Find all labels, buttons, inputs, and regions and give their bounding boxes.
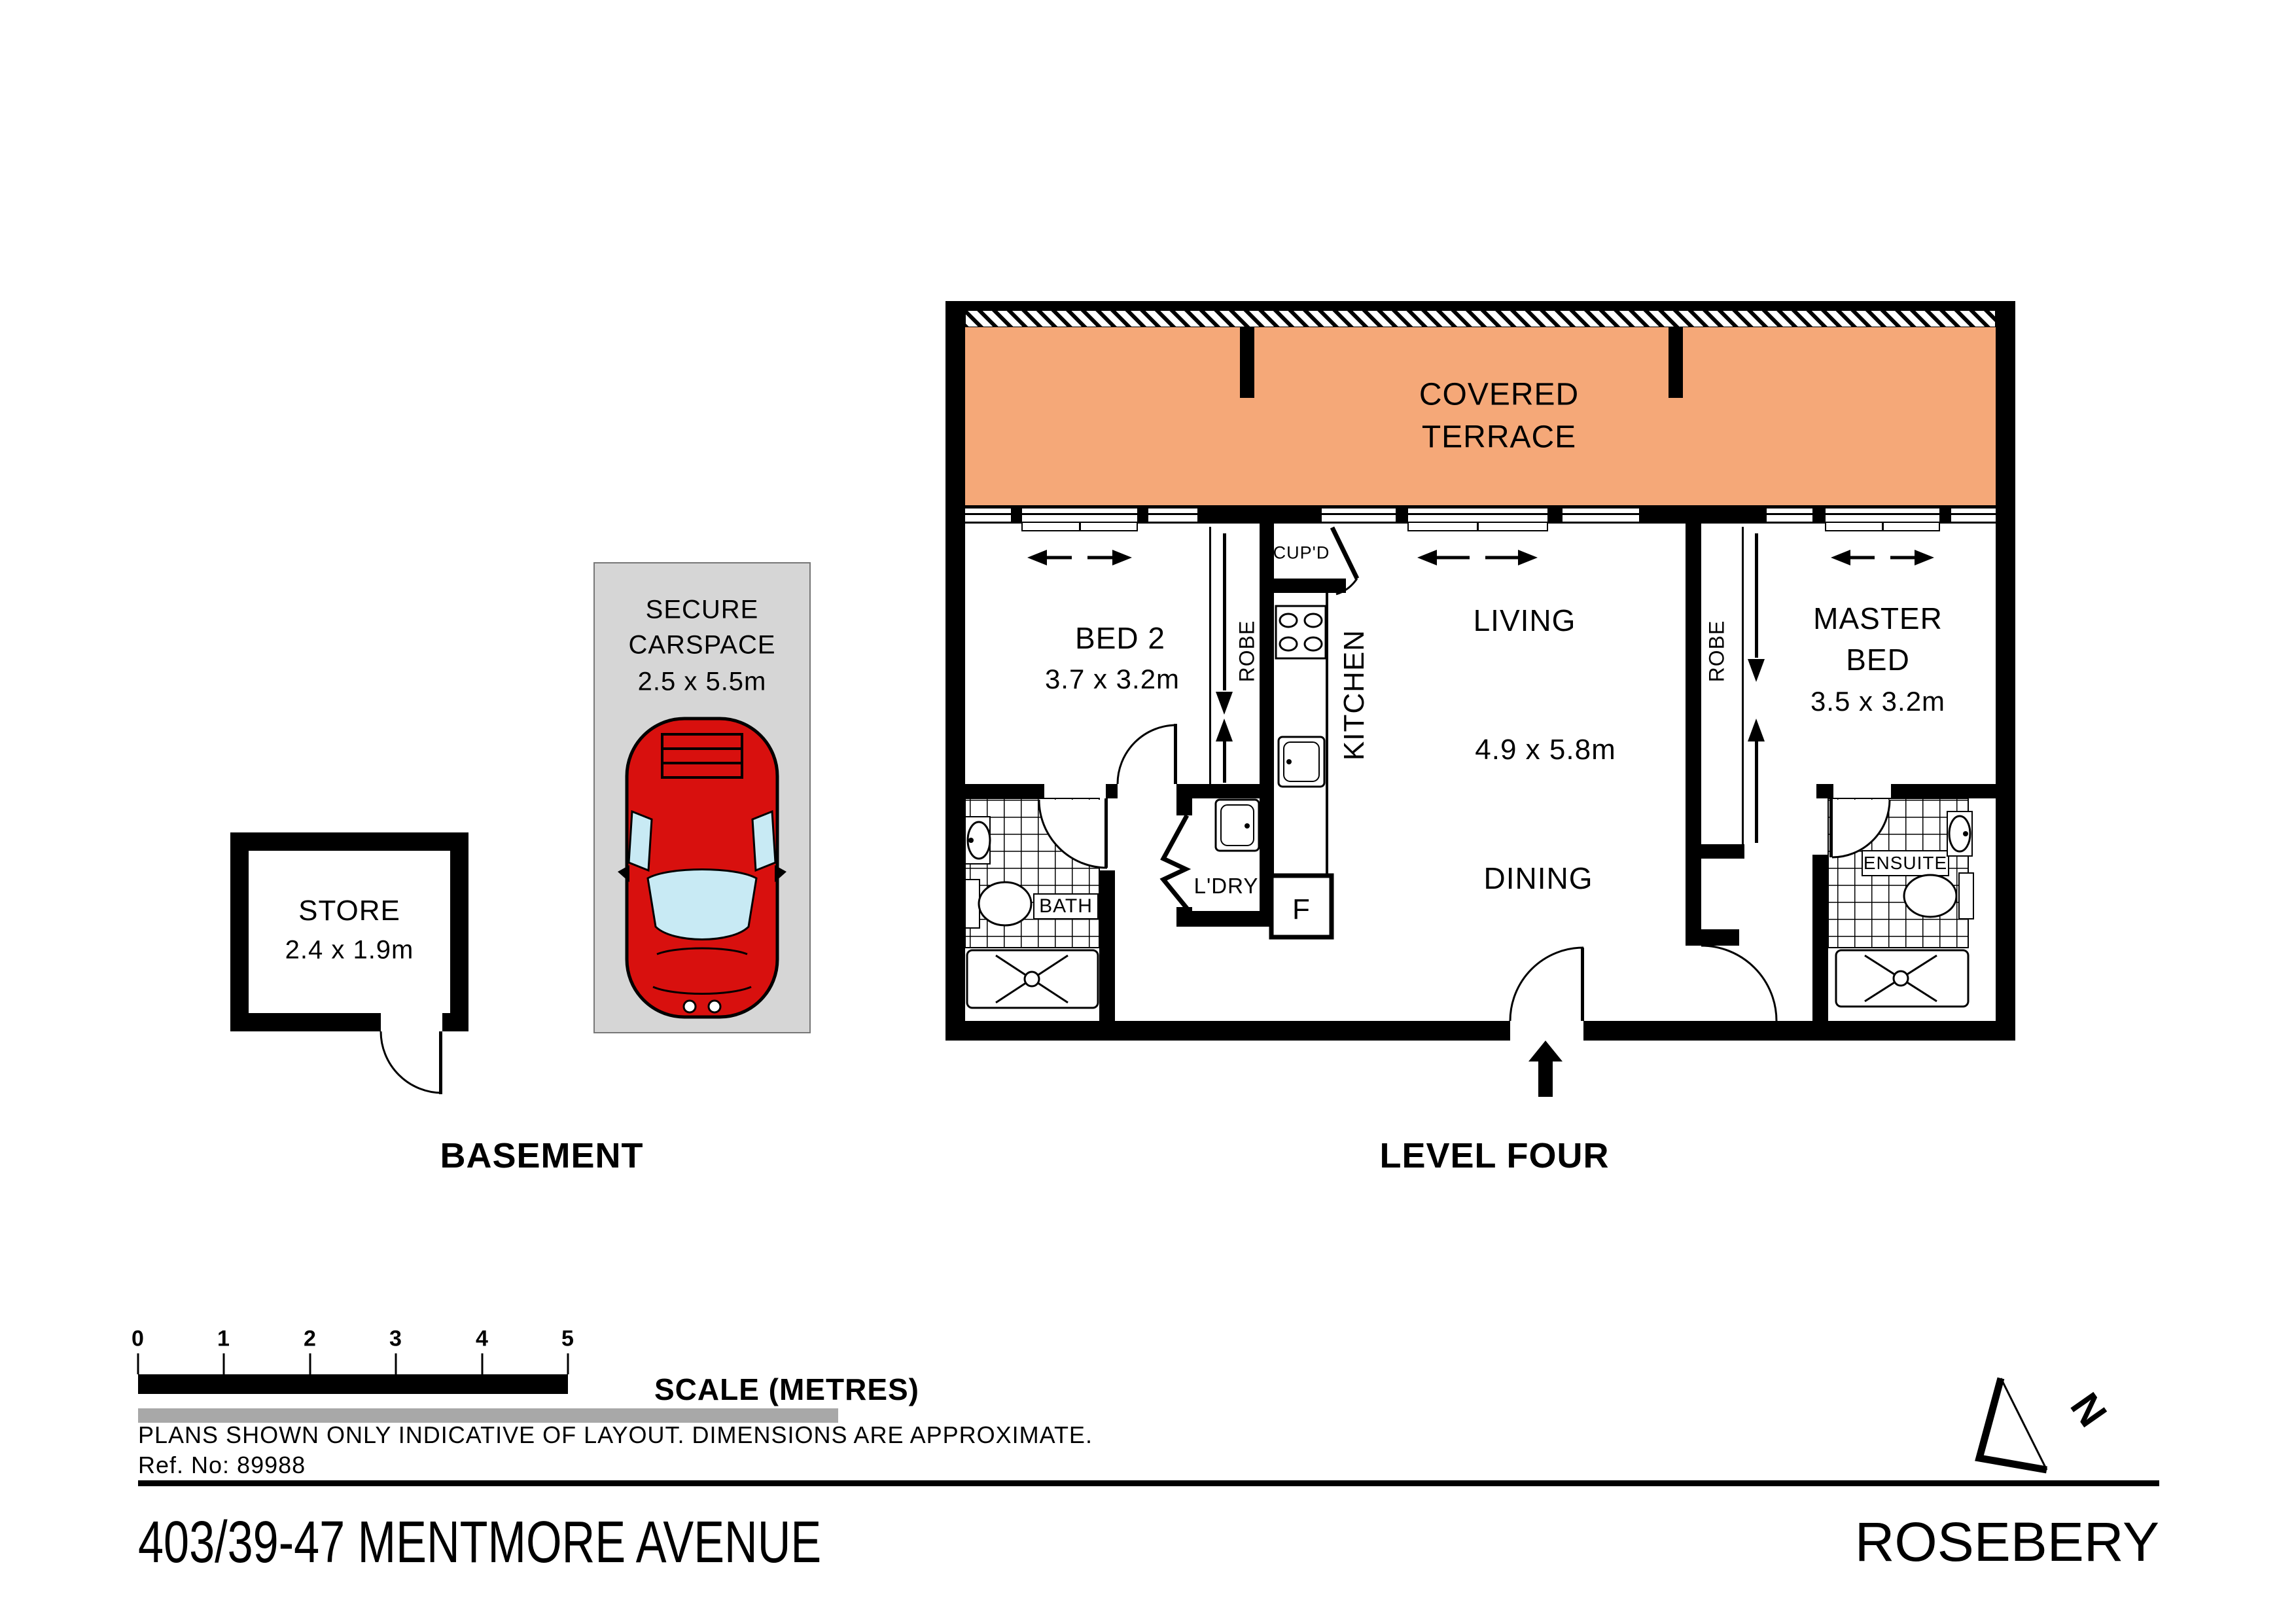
laundry-tub-icon	[1216, 800, 1259, 851]
property-suburb: ROSEBERY	[1855, 1510, 2159, 1574]
terrace-column-left	[1240, 327, 1254, 398]
disclaimer-text: PLANS SHOWN ONLY INDICATIVE OF LAYOUT. D…	[138, 1421, 1093, 1449]
north-letter: N	[2062, 1385, 2115, 1435]
robes	[1209, 527, 1765, 844]
room-label-bath: BATH	[1039, 895, 1093, 918]
terrace-top-wall	[945, 301, 2015, 310]
store-door-leaf	[439, 1031, 442, 1094]
ensuite-toilet-cistern	[1959, 873, 1973, 919]
store-door-swing	[381, 1031, 442, 1093]
cupboard-label: CUP'D	[1273, 543, 1330, 563]
room-dims-living: 4.9 x 5.8m	[1475, 734, 1616, 766]
room-label-master-line2: BED	[1846, 642, 1910, 677]
section-title-level-four: LEVEL FOUR	[1379, 1135, 1609, 1176]
outer-wall-left	[945, 301, 965, 1041]
section-title-basement: BASEMENT	[440, 1135, 643, 1176]
room-dims-master: 3.5 x 3.2m	[1810, 686, 1945, 717]
robe-label-master: ROBE	[1705, 620, 1729, 683]
robe-label-bed2: ROBE	[1235, 620, 1260, 683]
bath-toilet-icon	[979, 882, 1031, 925]
cupboard-door	[1332, 527, 1357, 579]
terrace-hatch-strip	[965, 310, 1996, 327]
scale-number-4: 4	[476, 1327, 489, 1352]
window-slide-arrowheads	[1027, 550, 1934, 565]
terrace-label-line2: TERRACE	[1422, 419, 1576, 455]
ref-number: Ref. No: 89988	[138, 1452, 306, 1479]
room-label-kitchen: KITCHEN	[1338, 630, 1371, 760]
room-label-dining: DINING	[1484, 861, 1593, 896]
outer-wall-bottom-left-seg	[945, 1021, 1510, 1041]
ensuite-toilet-icon	[1904, 875, 1956, 917]
scale-number-2: 2	[304, 1327, 317, 1352]
covered-terrace-area	[965, 327, 1996, 505]
floorplan-page: N COVERED TERRACE BED 2 3.7 x 3.2m ROBE …	[0, 0, 2296, 1623]
room-label-ensuite: ENSUITE	[1863, 853, 1947, 874]
stove-icon	[1276, 606, 1326, 658]
laundry-bifold-door	[1163, 815, 1187, 908]
car-icon	[618, 719, 786, 1017]
store-label: STORE	[298, 895, 400, 927]
kitchen-fixtures	[1271, 606, 1332, 937]
room-label-living: LIVING	[1474, 603, 1576, 638]
outer-wall-bottom-right-seg	[1583, 1021, 2015, 1041]
north-arrow-icon: N	[1979, 1378, 2115, 1470]
scale-gray-bar	[138, 1408, 838, 1423]
outer-wall-right	[1996, 301, 2015, 1041]
room-dims-bed2: 3.7 x 3.2m	[1045, 664, 1180, 695]
bath-toilet-cistern	[965, 880, 980, 928]
room-label-laundry: L'DRY	[1194, 874, 1259, 899]
footer-rule	[138, 1480, 2159, 1486]
terrace-label-line1: COVERED	[1419, 377, 1579, 413]
room-label-bed2: BED 2	[1075, 620, 1165, 656]
scale-number-1: 1	[217, 1327, 230, 1352]
window-band	[945, 505, 2015, 531]
carspace-label-line1: SECURE	[646, 596, 759, 625]
scale-number-3: 3	[389, 1327, 402, 1352]
scale-title: SCALE (METRES)	[654, 1372, 919, 1407]
room-label-master-line1: MASTER	[1813, 601, 1943, 636]
floorplan-drawing: N	[0, 0, 2296, 1623]
property-address: 403/39-47 MENTMORE AVENUE	[138, 1509, 821, 1577]
scale-number-5: 5	[561, 1327, 574, 1352]
carspace-label-line2: CARSPACE	[628, 631, 775, 660]
terrace-column-right	[1669, 327, 1683, 398]
entry-arrow-icon	[1528, 1041, 1563, 1097]
carspace-dims: 2.5 x 5.5m	[638, 668, 767, 697]
fridge-label: F	[1292, 893, 1311, 926]
scale-number-0: 0	[132, 1327, 145, 1352]
door-swings	[1039, 527, 1890, 1021]
store-dims: 2.4 x 1.9m	[285, 936, 414, 965]
store-walls	[230, 832, 468, 1031]
